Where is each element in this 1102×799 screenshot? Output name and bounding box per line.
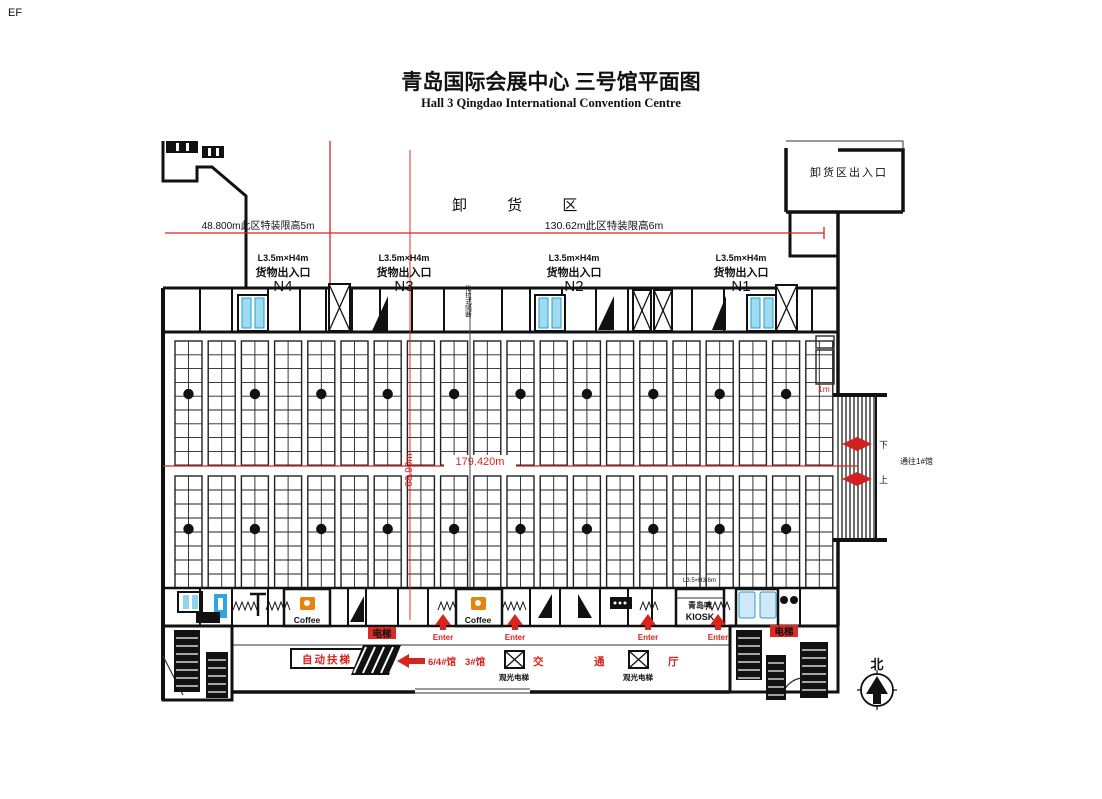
toilet-icon [790,596,798,604]
pillar-dot [449,524,459,534]
booth-block [540,476,567,588]
booth-block [573,341,600,465]
gate-id: N3 [394,278,413,295]
sightseeing-elevator-label: 观光电梯 [499,672,529,682]
enter-arrow-icon [507,614,523,630]
pillar-dot [250,389,260,399]
booth-note: L3.5×H3.6m [683,578,716,584]
service-band: Coffee 电梯 Coffee 青岛啤 KIOSK [178,588,800,642]
booth-block [175,341,202,465]
elevator-sign: 电梯 [368,627,396,640]
coffee-label: Coffee [294,615,321,625]
toilet-icon [739,592,755,618]
kiosk-top-label: 青岛啤 [688,600,712,610]
floor-plan-svg: EF 青岛国际会展中心 三号馆平面图 Hall 3 Qingdao Intern… [0,0,1102,799]
elevator-shaft-icon [329,284,350,331]
booth-block [607,341,634,465]
booth-block [673,476,700,588]
gate-type: 货物出入口 [546,265,602,279]
double-door-icon [747,295,777,331]
pillar-dot [183,524,193,534]
elevator-label: 电梯 [372,628,392,640]
sightseeing-elevator: 观光电梯 [499,651,529,682]
pillar-dot [383,524,393,534]
hall3-label: 3#馆 [465,656,486,668]
pillar-dot [383,389,393,399]
gate-size: L3.5m×H4m [379,253,430,263]
booth-block [739,341,766,465]
booth-block [673,341,700,465]
folding-gate-icon [438,602,456,610]
floor-plan-page: { "page": { "corner_label": "EF" }, "hea… [0,0,1102,799]
booth-block [773,341,800,465]
enter-label: Enter [638,633,658,642]
elevator-shaft-icon [776,285,797,331]
right-note: 1m [818,384,830,394]
folding-gate-icon [502,602,526,610]
kiosk-label: KIOSK [686,612,715,622]
hall-char: 交 [533,655,544,668]
folding-gate-icon [640,602,658,610]
booth-block [308,341,335,465]
gate-id: N4 [273,278,292,295]
elevator-label: 电梯 [774,626,794,638]
hall-char: 通 [594,656,605,668]
booth-block [474,476,501,588]
gate-size: L3.5m×H4m [549,253,600,263]
door-leaf-icon [183,595,189,609]
stairs-icon [712,296,726,330]
escalator-sign: 自动扶梯 [291,645,402,675]
escalator-label: 自动扶梯 [302,653,352,666]
booth-block [806,341,833,465]
stairs-icon [578,594,592,618]
coffee-shop: Coffee [456,589,502,626]
booth-block [806,476,833,588]
gate-type: 货物出入口 [376,265,432,279]
left-arrow-icon [397,654,425,668]
enter-label: Enter [433,633,453,642]
unloading-entrance-label: 卸货区出入口 [810,165,888,179]
pillar-dot [582,524,592,534]
gate-size: L3.5m×H4m [716,253,767,263]
booth-block [474,341,501,465]
booth-block [341,476,368,588]
pillar-dot [648,389,658,399]
gate-id: N1 [731,278,750,295]
door-leaf-icon [192,595,198,609]
stairs-icon [174,630,200,692]
folding-gate-icon [266,602,290,610]
pillar-dot [781,524,791,534]
coffee-label: Coffee [465,615,492,625]
booth-block [241,341,268,465]
page-title: 青岛国际会展中心 三号馆平面图 [401,70,700,94]
pillar-dot [449,389,459,399]
booth-block [208,341,235,465]
pillar-dot [781,389,791,399]
booth-block [407,341,434,465]
booth-block [275,476,302,588]
ramp-down-label: 下 [879,440,888,450]
gate-row-structures: 推拉式隔断 [200,284,812,588]
booth-block [706,341,733,465]
stairs-icon [766,655,786,700]
coffee-shop: Coffee [284,589,330,626]
north-label: 北 [870,657,883,672]
pillar-dot [515,389,525,399]
pillar-dot [582,389,592,399]
pillar-dot [648,524,658,534]
hall-char: 厅 [668,656,679,668]
to-halls-label: 6/4#馆 [428,656,456,668]
booth-block [275,341,302,465]
enter-arrow-icon [435,614,451,630]
booth-block [607,476,634,588]
pillar-dot [250,524,260,534]
booth-block [208,476,235,588]
double-door-icon [535,295,565,331]
toilet-icon [780,596,788,604]
booth-block [507,341,534,465]
gate-size: L3.5m×H4m [258,253,309,263]
corner-label: EF [8,7,22,19]
pillar-dot [715,389,725,399]
to-hall1-label: 通往1#馆 [900,456,933,466]
gate-type: 货物出入口 [255,265,311,279]
pillar-dot [316,524,326,534]
folding-gate-icon [233,602,257,610]
pillar-dot [515,524,525,534]
hall-width-dimension: 179.420m [456,456,505,468]
pillar-dot [316,389,326,399]
hall1-connector-ramp: 下 上 通往1#馆 [833,395,933,540]
booth-block [640,341,667,465]
sightseeing-elevator: 观光电梯 [623,651,653,682]
booth-block [441,341,468,465]
north-arrow-icon [866,676,888,704]
stairs-icon [350,596,364,622]
ramp-up-label: 上 [879,475,888,485]
toilet-icon [760,592,776,618]
stairs-icon [538,594,552,618]
enter-label: Enter [505,633,525,642]
gate-type: 货物出入口 [713,265,769,279]
gate-id: N2 [564,278,583,295]
booth-block [407,476,434,588]
stairs-icon [598,296,614,330]
pillar-dot [183,389,193,399]
double-door-icon [238,295,268,331]
elevator-sign: 电梯 [770,625,798,638]
zone-left-label: 48.800m此区特装限高5m [202,219,315,232]
booth-block [739,476,766,588]
booth-block [540,341,567,465]
stairs-icon [206,652,228,698]
pillar-dot [715,524,725,534]
north-compass: 北 [857,657,897,710]
unloading-area-label: 卸 货 区 [452,197,595,214]
zone-right-label: 130.62m此区特装限高6m [545,219,664,232]
hall-depth-dimension: 68.90m [404,453,415,486]
booth-block [374,341,401,465]
booth-block [341,341,368,465]
enter-label: Enter [708,633,728,642]
elevator-shaft-icon [633,290,651,331]
page-subtitle: Hall 3 Qingdao International Convention … [421,96,681,110]
sightseeing-elevator-label: 观光电梯 [623,672,653,682]
enter-arrow-icon [640,614,656,630]
elevator-shaft-icon [654,290,672,331]
